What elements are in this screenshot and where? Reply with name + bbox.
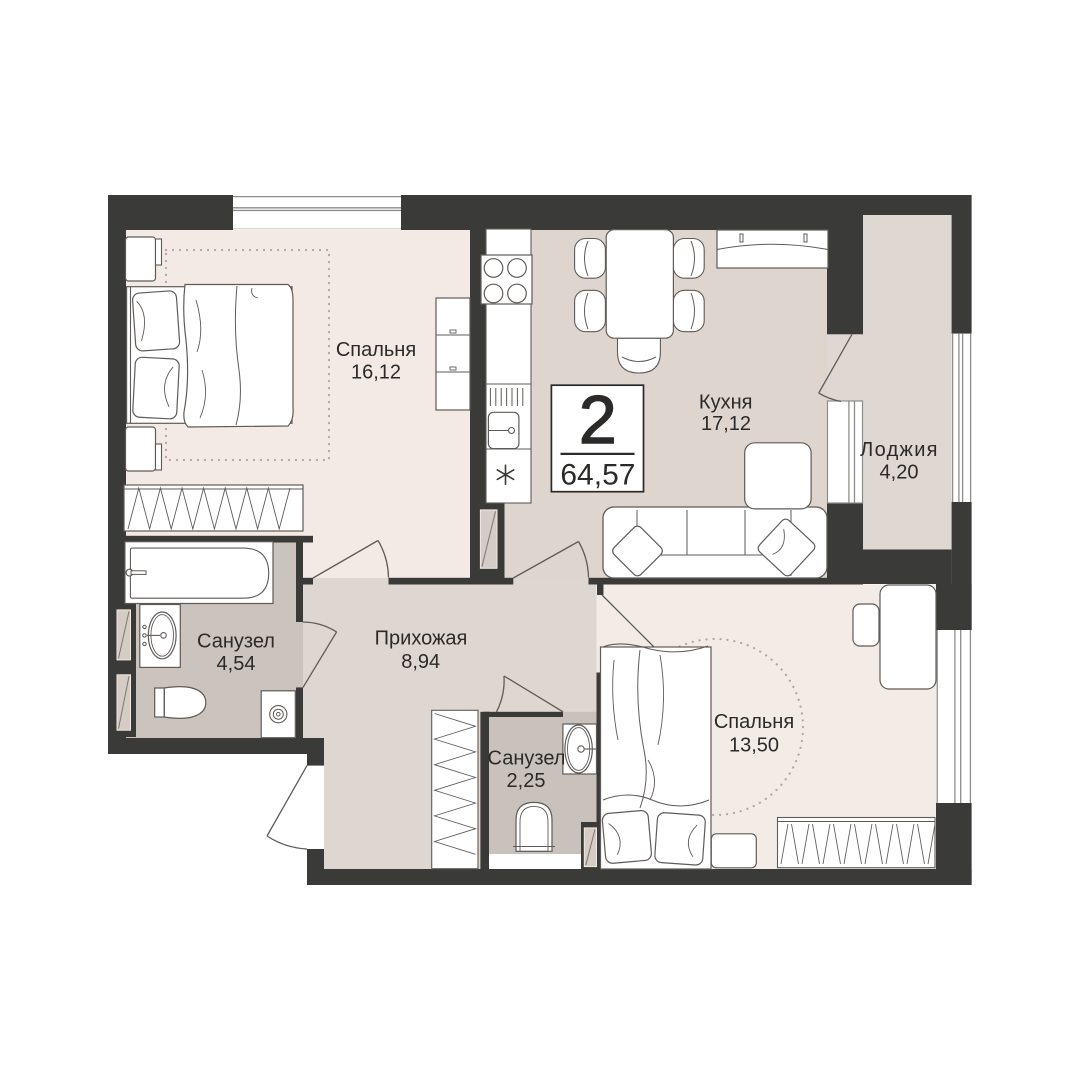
svg-text:2,25: 2,25 [507, 770, 546, 792]
svg-text:Санузел: Санузел [197, 631, 275, 653]
svg-text:13,50: 13,50 [729, 735, 779, 757]
svg-text:Прихожая: Прихожая [375, 628, 468, 650]
svg-text:4,20: 4,20 [880, 462, 919, 484]
svg-text:16,12: 16,12 [351, 362, 401, 384]
svg-text:Кухня: Кухня [699, 392, 753, 414]
svg-text:17,12: 17,12 [701, 413, 751, 435]
svg-text:64,57: 64,57 [560, 459, 635, 492]
svg-text:8,94: 8,94 [401, 651, 440, 673]
svg-text:Спальня: Спальня [714, 711, 794, 733]
svg-text:2: 2 [579, 382, 617, 458]
svg-text:Спальня: Спальня [336, 339, 416, 361]
svg-text:Лоджия: Лоджия [860, 439, 939, 461]
svg-text:4,54: 4,54 [217, 653, 256, 675]
svg-text:Санузел: Санузел [488, 748, 566, 770]
